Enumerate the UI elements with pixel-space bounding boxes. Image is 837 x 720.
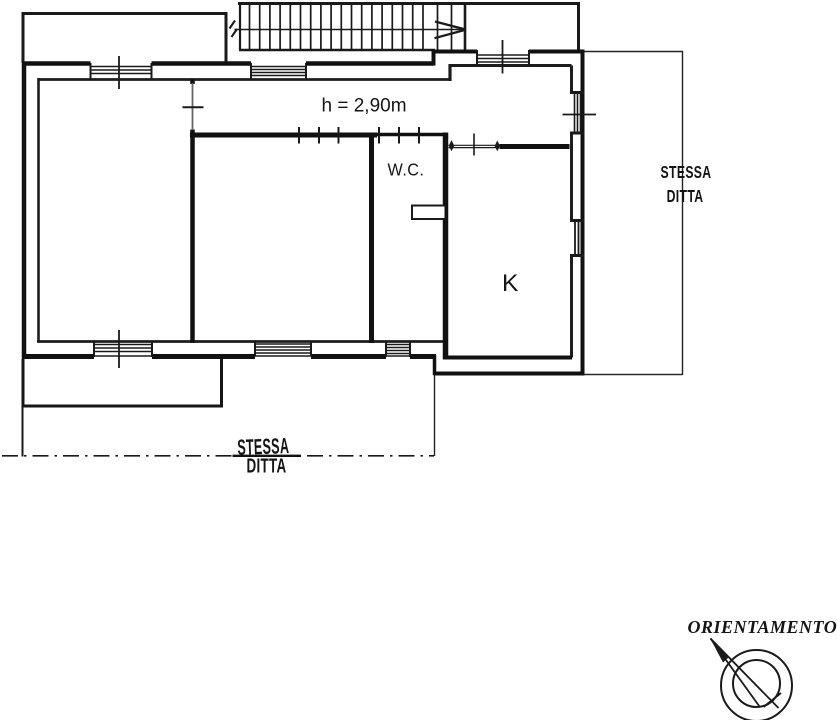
svg-text:DITTA: DITTA (246, 455, 286, 477)
svg-text:DITTA: DITTA (667, 187, 704, 207)
svg-text:K: K (502, 270, 519, 297)
svg-text:STESSA: STESSA (661, 163, 712, 183)
svg-text:W.C.: W.C. (388, 160, 425, 180)
svg-text:ORIENTAMENTO: ORIENTAMENTO (688, 617, 837, 637)
svg-text:h = 2,90m: h = 2,90m (322, 96, 407, 117)
